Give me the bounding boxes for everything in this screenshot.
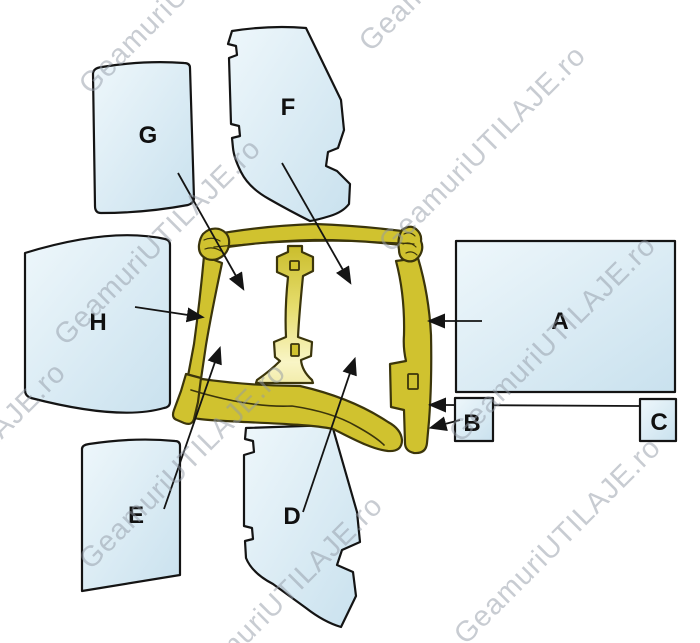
frame-bracket-hole-top — [290, 261, 299, 270]
frame-pillar-hole-right — [408, 374, 418, 389]
parts-diagram: G F H A B C E D GeamuriUTILAJE.ro Geamur… — [0, 0, 700, 643]
label-c: C — [650, 409, 667, 436]
label-b: B — [463, 410, 480, 437]
label-f: F — [281, 94, 296, 121]
frame-right-pillar — [390, 258, 431, 453]
frame-bracket-hole-middle — [291, 344, 299, 356]
glass-panel-f — [228, 27, 350, 221]
glass-panel-d — [244, 425, 360, 627]
label-h: H — [89, 309, 106, 336]
diagram-canvas: G F H A B C E D — [0, 0, 700, 643]
label-e: E — [128, 502, 144, 529]
cab-frame — [173, 224, 431, 453]
label-g: G — [139, 122, 158, 149]
label-d: D — [283, 503, 300, 530]
frame-top-bar — [206, 224, 417, 250]
frame-center-pillar — [256, 246, 313, 383]
frame-left-pillar — [188, 256, 222, 379]
label-a: A — [551, 308, 568, 335]
